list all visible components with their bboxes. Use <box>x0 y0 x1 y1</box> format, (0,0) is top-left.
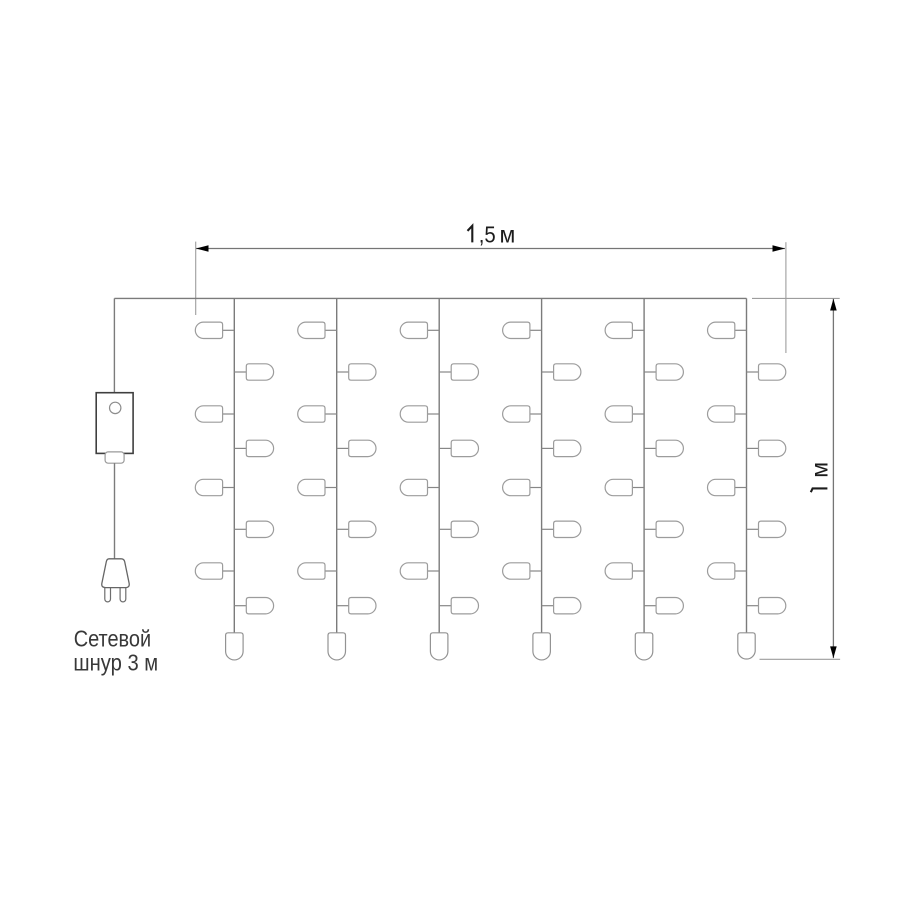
svg-text:м: м <box>807 462 833 478</box>
svg-text:,5: ,5 <box>479 221 496 247</box>
svg-text:м: м <box>500 221 516 247</box>
svg-text:шнур 3 м: шнур 3 м <box>73 650 158 676</box>
svg-text:Сетевой: Сетевой <box>74 625 152 651</box>
